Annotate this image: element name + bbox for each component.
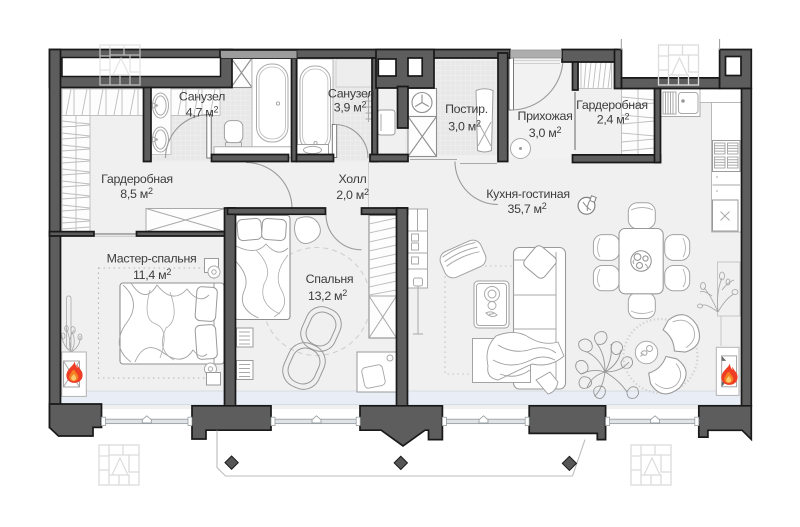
svg-text:Прихожая: Прихожая bbox=[517, 109, 572, 123]
svg-text:Гардеробная: Гардеробная bbox=[576, 98, 648, 112]
svg-text:Кухня-гостиная: Кухня-гостиная bbox=[486, 187, 569, 201]
svg-text:Холл: Холл bbox=[338, 172, 366, 186]
svg-text:Спальня: Спальня bbox=[306, 272, 354, 286]
svg-text:35,7 м2: 35,7 м2 bbox=[508, 201, 547, 216]
svg-text:Мастер-спальня: Мастер-спальня bbox=[107, 252, 197, 266]
svg-text:Санузел: Санузел bbox=[328, 87, 374, 101]
svg-text:Гардеробная: Гардеробная bbox=[101, 172, 173, 186]
svg-text:13,2 м2: 13,2 м2 bbox=[308, 288, 347, 303]
svg-text:Постир.: Постир. bbox=[445, 102, 488, 116]
svg-text:Санузел: Санузел bbox=[179, 90, 225, 104]
svg-text:11,4 м2: 11,4 м2 bbox=[133, 267, 171, 282]
